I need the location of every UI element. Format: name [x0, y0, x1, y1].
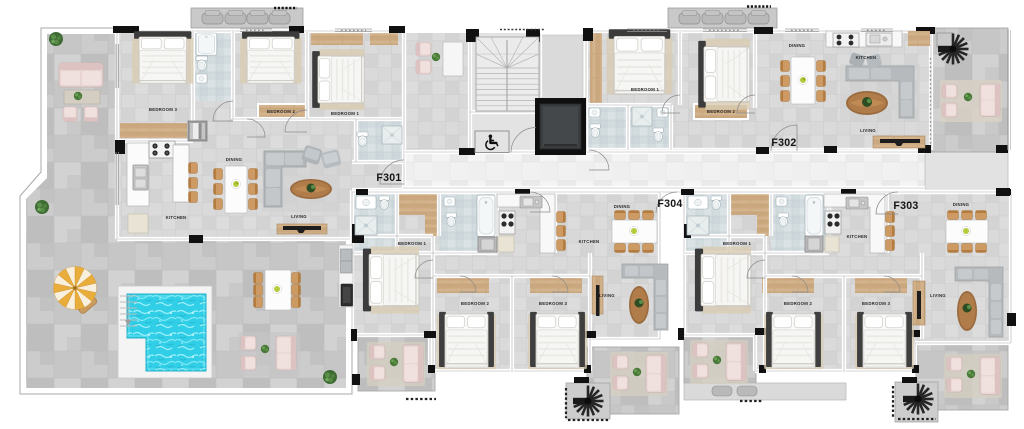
svg-text:F304: F304	[657, 198, 682, 210]
svg-text:BEDROOM 3: BEDROOM 3	[149, 107, 178, 112]
svg-text:DINING: DINING	[226, 157, 243, 162]
svg-text:KITCHEN: KITCHEN	[166, 215, 187, 220]
svg-text:DINING: DINING	[614, 204, 631, 209]
svg-text:BEDROOM 3: BEDROOM 3	[862, 301, 891, 306]
svg-text:LIVING: LIVING	[599, 293, 615, 298]
svg-text:DINING: DINING	[789, 43, 806, 48]
svg-text:BEDROOM 3: BEDROOM 3	[539, 301, 568, 306]
svg-text:BEDROOM 2: BEDROOM 2	[267, 109, 296, 114]
svg-text:BEDROOM 1: BEDROOM 1	[631, 87, 660, 92]
svg-text:LIVING: LIVING	[291, 214, 307, 219]
svg-text:LIVING: LIVING	[860, 128, 876, 133]
svg-text:BEDROOM 1: BEDROOM 1	[398, 241, 427, 246]
svg-text:F302: F302	[771, 137, 796, 149]
svg-text:KITCHEN: KITCHEN	[847, 234, 868, 239]
svg-text:LIVING: LIVING	[930, 293, 946, 298]
svg-text:BEDROOM 2: BEDROOM 2	[707, 109, 736, 114]
svg-text:F303: F303	[893, 200, 918, 212]
svg-text:BEDROOM 2: BEDROOM 2	[461, 301, 490, 306]
svg-text:KITCHEN: KITCHEN	[579, 239, 600, 244]
svg-text:BEDROOM 1: BEDROOM 1	[723, 241, 752, 246]
svg-text:KITCHEN: KITCHEN	[856, 55, 877, 60]
svg-text:F301: F301	[376, 172, 401, 184]
svg-text:DINING: DINING	[953, 202, 970, 207]
svg-text:BEDROOM 2: BEDROOM 2	[784, 301, 813, 306]
svg-text:BEDROOM 1: BEDROOM 1	[331, 111, 360, 116]
